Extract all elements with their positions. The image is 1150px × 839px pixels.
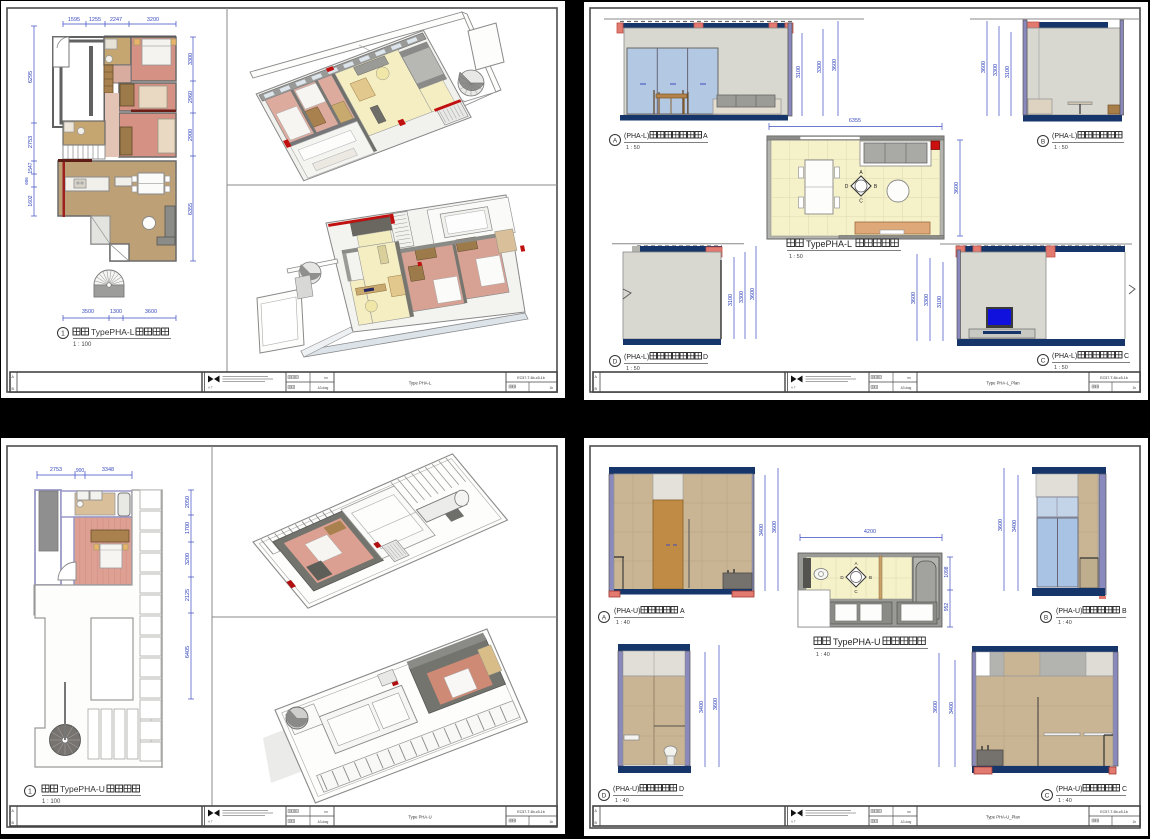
svg-text:3348: 3348 (102, 467, 114, 473)
svg-text:3300: 3300 (993, 64, 999, 76)
svg-text:EC57-T-6b-c5-1b: EC57-T-6b-c5-1b (1100, 376, 1128, 380)
svg-text:3400: 3400 (1012, 520, 1018, 532)
svg-text:C: C (859, 199, 863, 205)
svg-text:D: D (679, 786, 684, 793)
svg-text:6295: 6295 (28, 71, 34, 83)
svg-text:1b: 1b (1132, 386, 1136, 390)
svg-text:3100: 3100 (728, 294, 734, 306)
svg-text:TypePHA-U: TypePHA-U (60, 784, 105, 794)
svg-text:2900: 2900 (188, 129, 194, 141)
svg-text:1 : 50: 1 : 50 (1054, 145, 1068, 151)
svg-text:TypePHA-L: TypePHA-L (806, 239, 852, 249)
svg-text:900: 900 (76, 468, 85, 474)
svg-text:3600: 3600 (772, 521, 778, 533)
svg-text:A3.dwg: A3.dwg (318, 386, 329, 390)
svg-text:3600: 3600 (713, 698, 719, 710)
svg-text:A.T: A.T (791, 820, 796, 824)
svg-text:TypePHA-L: TypePHA-L (91, 327, 135, 337)
svg-text:1 : 100: 1 : 100 (73, 342, 92, 348)
svg-text:2960: 2960 (188, 91, 194, 103)
svg-text:2247: 2247 (110, 17, 122, 23)
svg-text:A3.dwg: A3.dwg (901, 820, 912, 824)
svg-text:1 : 50: 1 : 50 (626, 366, 640, 372)
svg-text:3400: 3400 (759, 524, 765, 536)
svg-text:(PHA-L): (PHA-L) (624, 354, 649, 361)
svg-text:3300: 3300 (188, 53, 194, 65)
svg-text:3300: 3300 (924, 294, 930, 306)
svg-text:(PHA-L): (PHA-L) (624, 133, 649, 140)
svg-text:1 : 50: 1 : 50 (626, 145, 640, 151)
svg-text:1b: 1b (549, 820, 553, 824)
svg-text:3200: 3200 (185, 553, 191, 565)
svg-text:nn: nn (907, 376, 911, 380)
svg-text:EC57-T-6b-c5-1b: EC57-T-6b-c5-1b (517, 810, 545, 814)
svg-text:A: A (703, 133, 708, 140)
svg-text:2753: 2753 (28, 136, 34, 148)
svg-text:3300: 3300 (739, 291, 745, 303)
svg-text:TypePHA-U: TypePHA-U (833, 637, 881, 647)
svg-text:3400: 3400 (699, 701, 705, 713)
svg-text:1 : 40: 1 : 40 (616, 620, 630, 626)
svg-text:B: B (1044, 615, 1048, 622)
svg-text:1 : 40: 1 : 40 (1058, 620, 1072, 626)
svg-text:1602: 1602 (28, 195, 34, 206)
svg-text:2753: 2753 (50, 467, 62, 473)
svg-text:(PHA-U): (PHA-U) (1056, 608, 1082, 615)
svg-text:(PHA-U): (PHA-U) (614, 608, 640, 615)
svg-text:6355: 6355 (188, 203, 194, 215)
svg-text:Type PHA-L_Plan: Type PHA-L_Plan (986, 381, 1020, 386)
svg-text:3600: 3600 (145, 309, 157, 315)
svg-text:C: C (1045, 793, 1050, 800)
svg-text:(PHA-L): (PHA-L) (1052, 133, 1077, 140)
svg-text:952: 952 (944, 603, 950, 612)
svg-text:1300: 1300 (110, 309, 122, 315)
svg-text:D: D (845, 184, 849, 190)
svg-text:D: D (703, 354, 708, 361)
svg-text:1 : 100: 1 : 100 (42, 799, 61, 805)
svg-text:A: A (680, 608, 685, 615)
svg-text:2125: 2125 (185, 589, 191, 601)
svg-text:3600: 3600 (750, 288, 756, 300)
svg-text:D: D (613, 359, 618, 366)
svg-text:1 : 50: 1 : 50 (1054, 365, 1068, 371)
svg-text:1 : 40: 1 : 40 (1058, 798, 1072, 804)
svg-text:nn: nn (324, 810, 328, 814)
svg-text:1: 1 (28, 789, 32, 796)
svg-text:A.T: A.T (791, 386, 796, 390)
svg-text:3600: 3600 (998, 519, 1004, 531)
svg-text:(PHA-U): (PHA-U) (1056, 786, 1082, 793)
svg-text:3600: 3600 (911, 292, 917, 304)
svg-text:1b: 1b (549, 386, 553, 390)
svg-text:A: A (602, 615, 607, 622)
svg-text:1547: 1547 (28, 162, 34, 173)
svg-text:1255: 1255 (89, 17, 101, 23)
svg-text:C: C (1124, 353, 1129, 360)
svg-text:A: A (613, 138, 618, 145)
svg-text:(PHA-L): (PHA-L) (1052, 353, 1077, 360)
svg-text:606: 606 (24, 177, 29, 185)
svg-text:3100: 3100 (937, 296, 943, 308)
svg-text:1 : 40: 1 : 40 (816, 652, 830, 658)
svg-text:6405: 6405 (185, 646, 191, 658)
svg-text:Type PHA-U: Type PHA-U (408, 815, 431, 820)
svg-text:Type PHA-L: Type PHA-L (409, 381, 432, 386)
svg-text:EC57-T-6b-c5-1b: EC57-T-6b-c5-1b (1100, 810, 1128, 814)
svg-text:(PHA-U): (PHA-U) (613, 786, 639, 793)
svg-text:C: C (1122, 786, 1127, 793)
svg-text:4200: 4200 (864, 529, 876, 535)
svg-text:1 : 40: 1 : 40 (615, 798, 629, 804)
svg-text:B: B (1122, 608, 1127, 615)
svg-text:nn: nn (907, 810, 911, 814)
svg-text:3100: 3100 (1005, 66, 1011, 78)
svg-text:A: A (854, 561, 857, 566)
svg-text:A3.dwg: A3.dwg (901, 386, 912, 390)
svg-text:3100: 3100 (796, 66, 802, 78)
svg-text:A.T: A.T (208, 820, 213, 824)
svg-text:3200: 3200 (147, 17, 159, 23)
svg-text:3600: 3600 (832, 59, 838, 71)
svg-text:3600: 3600 (933, 701, 939, 713)
svg-text:2050: 2050 (185, 496, 191, 508)
svg-text:nn: nn (324, 376, 328, 380)
svg-text:D: D (602, 793, 607, 800)
svg-text:B: B (869, 575, 872, 580)
svg-text:C: C (1041, 358, 1046, 365)
svg-text:EC57-T-6b-c5-1b: EC57-T-6b-c5-1b (517, 376, 545, 380)
svg-text:A3.dwg: A3.dwg (318, 820, 329, 824)
svg-text:3400: 3400 (949, 702, 955, 714)
svg-text:3500: 3500 (82, 309, 94, 315)
svg-text:1595: 1595 (68, 17, 80, 23)
svg-text:1700: 1700 (185, 522, 191, 534)
svg-text:1: 1 (61, 331, 65, 338)
svg-text:6355: 6355 (849, 118, 861, 124)
svg-text:1098: 1098 (944, 566, 950, 577)
svg-text:3300: 3300 (817, 61, 823, 73)
svg-text:3600: 3600 (981, 61, 987, 73)
svg-text:Type PHA-U_Plan: Type PHA-U_Plan (986, 815, 1021, 820)
svg-text:B: B (1041, 139, 1045, 146)
svg-text:A.T: A.T (208, 386, 213, 390)
svg-text:3600: 3600 (954, 182, 960, 194)
svg-text:1b: 1b (1132, 820, 1136, 824)
svg-text:1 : 50: 1 : 50 (789, 254, 803, 260)
